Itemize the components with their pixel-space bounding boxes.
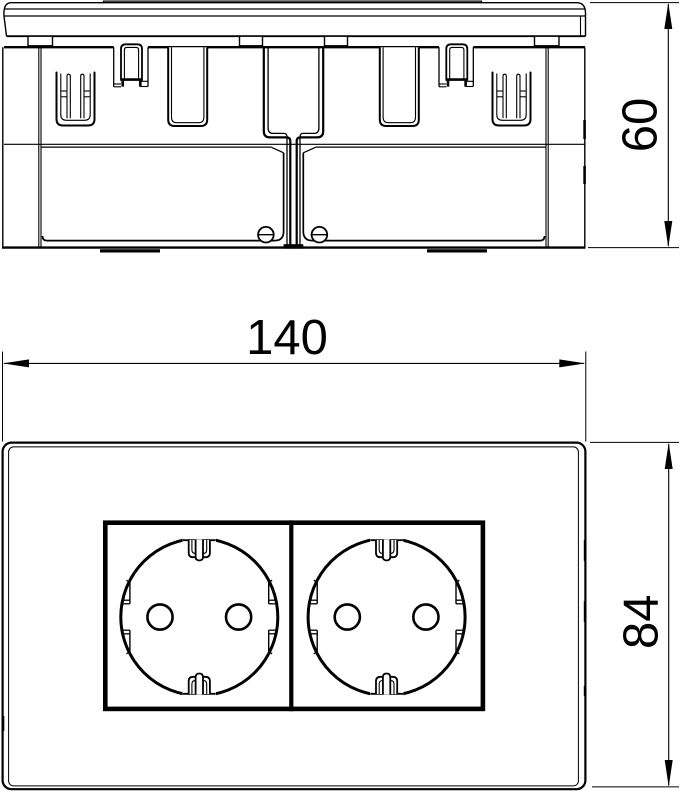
svg-text:60: 60	[614, 98, 668, 153]
svg-text:140: 140	[246, 311, 328, 365]
svg-text:84: 84	[615, 594, 669, 649]
